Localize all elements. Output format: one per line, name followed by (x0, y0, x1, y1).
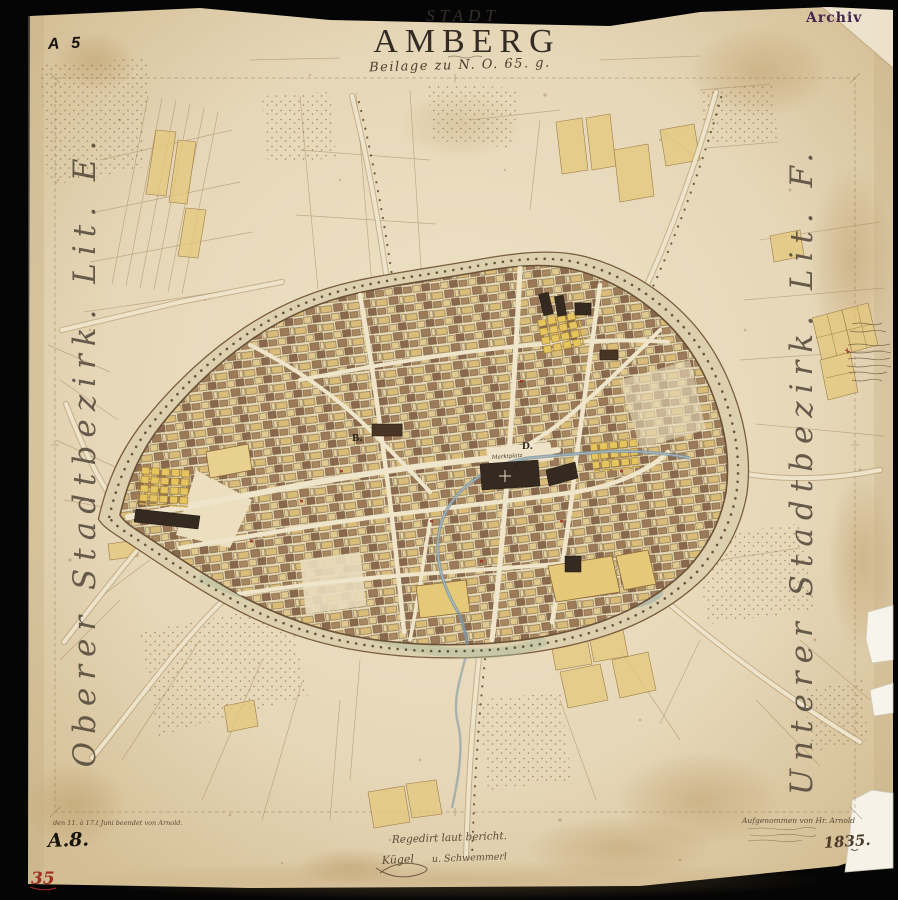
castle-garden-grid (137, 466, 192, 508)
sheet-reference: A.8. (45, 829, 89, 852)
district-letter-c: C. (514, 461, 525, 473)
st-martin-church (480, 460, 540, 490)
surveyor-signature: Kügel (380, 852, 414, 867)
archive-number: 35 (31, 869, 55, 889)
district-letter-b: B. (352, 432, 362, 444)
amberg-map-scan: B. D. C. Marktplatz STADT AMBERG Beilage… (0, 0, 898, 900)
scanned-map-page: B. D. C. Marktplatz STADT AMBERG Beilage… (0, 0, 898, 900)
archive-stamp: Archiv (805, 10, 862, 26)
sheet-code: A 5 (47, 35, 85, 53)
revision-note: den 11. à 17.t Juni beendet von Arnold. (53, 819, 183, 827)
right-margin-district-title: Unterer Stadtbezirk. Lit. F. (784, 145, 820, 795)
survey-note: Aufgenommen von Hr. Arnold (741, 816, 855, 825)
survey-year: 1835. (823, 831, 871, 852)
map-title: AMBERG (373, 23, 560, 60)
left-margin-district-title: Oberer Stadtbezirk. Lit. E. (67, 133, 103, 768)
district-letter-d: D. (522, 440, 533, 452)
